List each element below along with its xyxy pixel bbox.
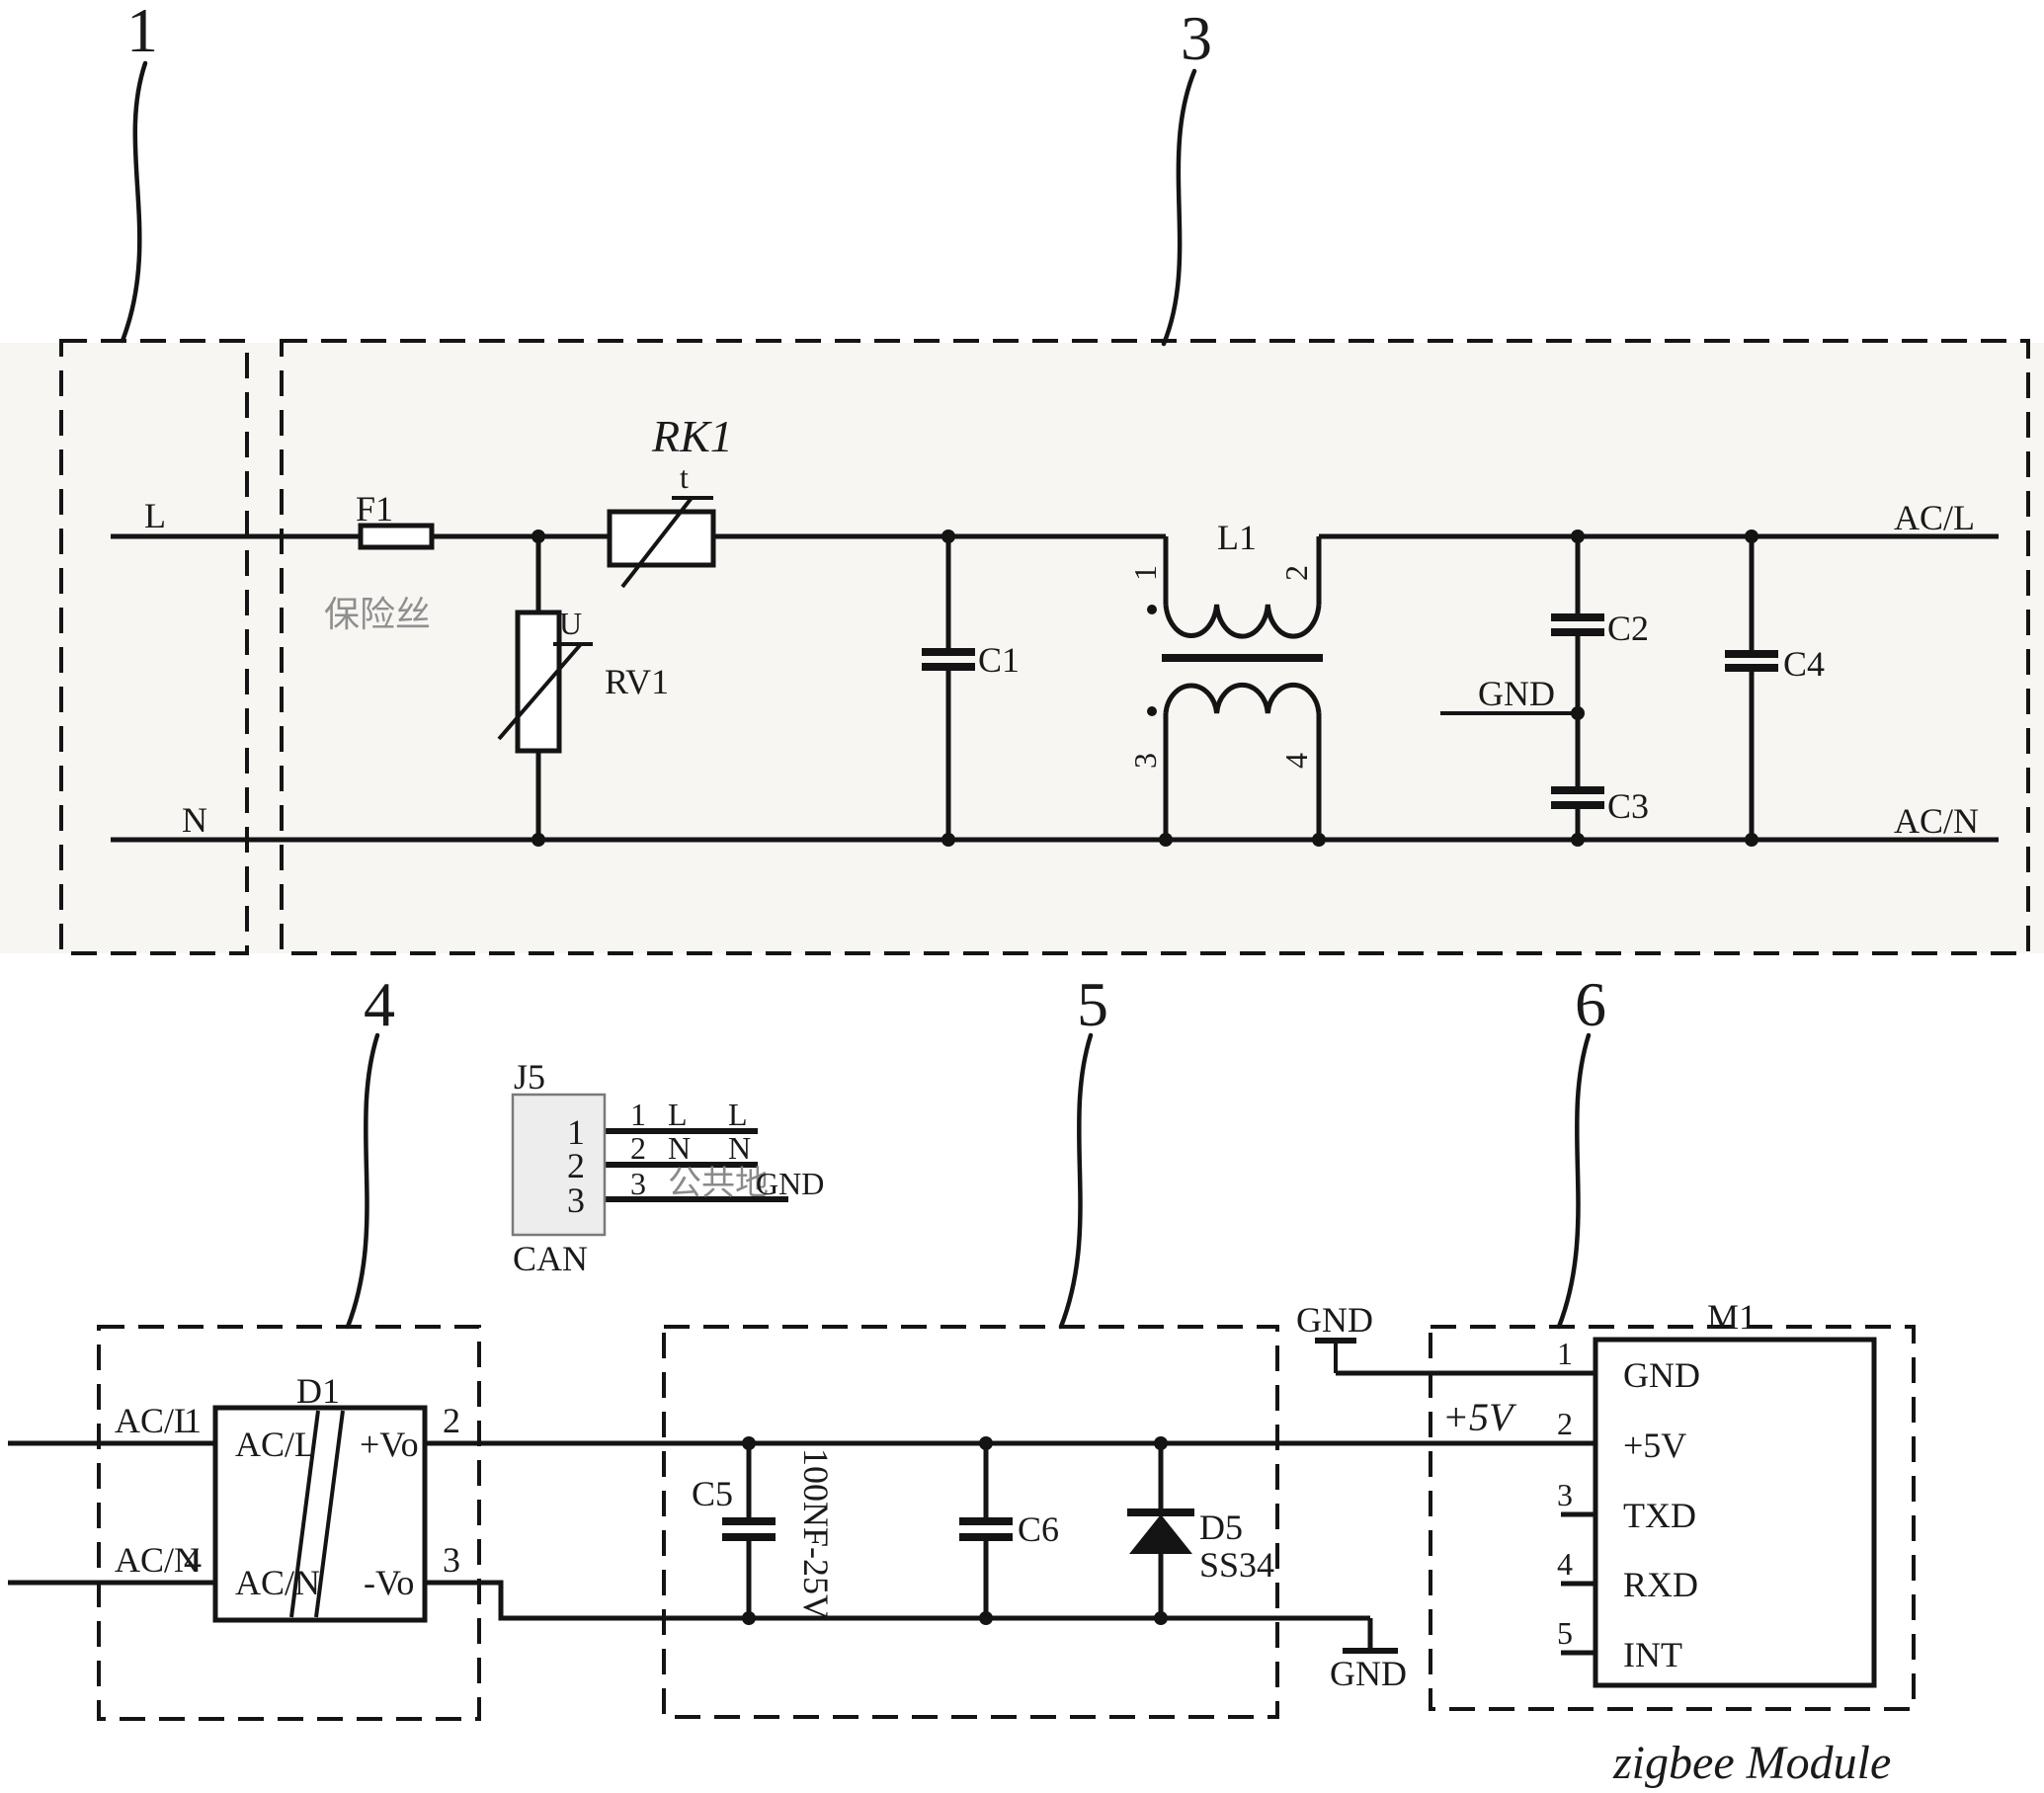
m1-pin2-num: 2 bbox=[1557, 1406, 1573, 1441]
m1-pin4-num: 4 bbox=[1557, 1546, 1573, 1582]
m1-pin4-name: RXD bbox=[1623, 1565, 1698, 1604]
gnd-top-label: GND bbox=[1296, 1300, 1373, 1340]
capacitor-c4-label: C4 bbox=[1783, 644, 1825, 684]
callout-6-leader-line bbox=[1559, 1035, 1589, 1327]
scan-band bbox=[0, 343, 2044, 953]
callout-1-label: 1 bbox=[126, 0, 158, 65]
m1-pin1-name: GND bbox=[1623, 1355, 1700, 1395]
j5-row2-signal: N bbox=[668, 1130, 691, 1166]
net-acn-label: AC/N bbox=[1894, 801, 1979, 841]
connector-j5: J5 CAN 1 2 3 1 L L 2 N N 3 公共地 GND bbox=[513, 1057, 824, 1278]
circuit-schematic: 1 3 4 5 6 F bbox=[0, 0, 2044, 1793]
callout-3-label: 3 bbox=[1181, 3, 1212, 73]
d1-input-acl-pin: 1 bbox=[184, 1401, 202, 1440]
diode-d5-label: D5 bbox=[1199, 1508, 1243, 1547]
j5-row2-num: 2 bbox=[630, 1130, 646, 1166]
callout-6: 6 bbox=[1559, 969, 1606, 1327]
capacitor-c5-value: 100NF-25V bbox=[796, 1448, 836, 1620]
net-n-label: N bbox=[182, 800, 207, 840]
connector-j5-pin3: 3 bbox=[567, 1181, 585, 1220]
d1-output-pin2: 2 bbox=[443, 1401, 460, 1440]
j5-row3-num: 3 bbox=[630, 1166, 646, 1201]
d1-port-pvo: +Vo bbox=[360, 1425, 419, 1464]
m1-pin5-name: INT bbox=[1623, 1635, 1682, 1674]
m1-pin5-num: 5 bbox=[1557, 1615, 1573, 1651]
zigbee-module-m1: M1 1 2 3 4 5 GND +5V TXD RXD INT zigbee … bbox=[1557, 1297, 1891, 1789]
d1-port-acl: AC/L bbox=[235, 1425, 316, 1464]
gnd-symbol-bottom: GND bbox=[1330, 1651, 1407, 1693]
j5-row1-signal: L bbox=[668, 1097, 688, 1132]
m1-pin3-name: TXD bbox=[1623, 1496, 1696, 1535]
thermistor-rk1-label: RK1 bbox=[651, 411, 733, 461]
capacitor-c5-label: C5 bbox=[692, 1474, 733, 1513]
zigbee-module-caption: zigbee Module bbox=[1612, 1737, 1891, 1789]
capacitor-c5: C5 100NF-25V bbox=[692, 1448, 836, 1620]
j5-row3-net: GND bbox=[756, 1166, 824, 1201]
callout-5-leader-line bbox=[1061, 1035, 1091, 1327]
callout-3-leader-line bbox=[1164, 71, 1194, 344]
diode-d5-part: SS34 bbox=[1199, 1545, 1274, 1585]
diode-d5-triangle bbox=[1129, 1514, 1192, 1554]
callout-5-label: 5 bbox=[1077, 969, 1108, 1039]
j5-row3-signal: 公共地 bbox=[668, 1165, 769, 1202]
capacitor-c2-label: C2 bbox=[1607, 609, 1649, 648]
callout-4: 4 bbox=[348, 969, 395, 1327]
zigbee-m1-label: M1 bbox=[1707, 1297, 1757, 1337]
choke-l1-pin4: 4 bbox=[1278, 753, 1314, 769]
connector-j5-label: J5 bbox=[514, 1057, 545, 1097]
callout-4-label: 4 bbox=[364, 969, 395, 1039]
choke-l1-pin1: 1 bbox=[1127, 565, 1163, 581]
connector-j5-body bbox=[513, 1095, 605, 1235]
acdc-module-d1-label: D1 bbox=[296, 1371, 340, 1411]
fuse-f1-chinese-label: 保险丝 bbox=[324, 595, 431, 634]
callout-1: 1 bbox=[123, 0, 158, 341]
gnd-symbol-top: GND bbox=[1296, 1300, 1373, 1341]
callout-4-leader-line bbox=[348, 1035, 377, 1327]
d1-port-nvo: -Vo bbox=[364, 1563, 414, 1602]
j5-row1-net: L bbox=[728, 1097, 748, 1132]
choke-l1-pin2: 2 bbox=[1278, 565, 1314, 581]
capacitor-c6-label: C6 bbox=[1018, 1509, 1059, 1549]
varistor-rv1-symbol-u: U bbox=[559, 606, 582, 641]
fuse-f1-label: F1 bbox=[356, 489, 393, 529]
connector-j5-pin2: 2 bbox=[567, 1146, 585, 1185]
m1-pin3-num: 3 bbox=[1557, 1477, 1573, 1512]
connector-j5-name: CAN bbox=[513, 1239, 588, 1278]
choke-l1-pin3: 3 bbox=[1127, 753, 1163, 769]
thermistor-rk1-symbol-t: t bbox=[680, 459, 689, 495]
gnd-bottom-label: GND bbox=[1330, 1654, 1407, 1693]
schematic-page: 1 3 4 5 6 F bbox=[0, 0, 2044, 1793]
d1-port-acn: AC/N bbox=[235, 1563, 320, 1602]
diode-d5: D5 SS34 bbox=[1127, 1508, 1274, 1585]
capacitor-c6: C6 bbox=[959, 1509, 1059, 1549]
varistor-rv1-label: RV1 bbox=[605, 662, 669, 701]
choke-l1-phase-dot-top bbox=[1147, 605, 1157, 614]
net-acl-label: AC/L bbox=[1894, 498, 1975, 537]
m1-pin2-name: +5V bbox=[1623, 1426, 1686, 1465]
choke-l1-label: L1 bbox=[1217, 518, 1257, 557]
callout-6-label: 6 bbox=[1575, 969, 1606, 1039]
d1-output-pin3: 3 bbox=[443, 1540, 460, 1580]
j5-row1-num: 1 bbox=[630, 1097, 646, 1132]
d1-input-acn-pin: 4 bbox=[184, 1540, 202, 1580]
j5-row2-net: N bbox=[728, 1130, 751, 1166]
choke-l1-core bbox=[1162, 654, 1323, 662]
net-l-label: L bbox=[144, 496, 166, 535]
choke-l1-phase-dot-bottom bbox=[1147, 706, 1157, 716]
emi-gnd-label: GND bbox=[1478, 674, 1555, 713]
callout-1-leader-line bbox=[123, 63, 145, 341]
m1-pin1-num: 1 bbox=[1557, 1336, 1573, 1371]
capacitor-c3-label: C3 bbox=[1607, 786, 1649, 826]
capacitor-c1-label: C1 bbox=[978, 640, 1020, 680]
rail-5v-label: +5V bbox=[1442, 1395, 1517, 1439]
callout-5: 5 bbox=[1061, 969, 1108, 1327]
callout-3: 3 bbox=[1164, 3, 1212, 344]
